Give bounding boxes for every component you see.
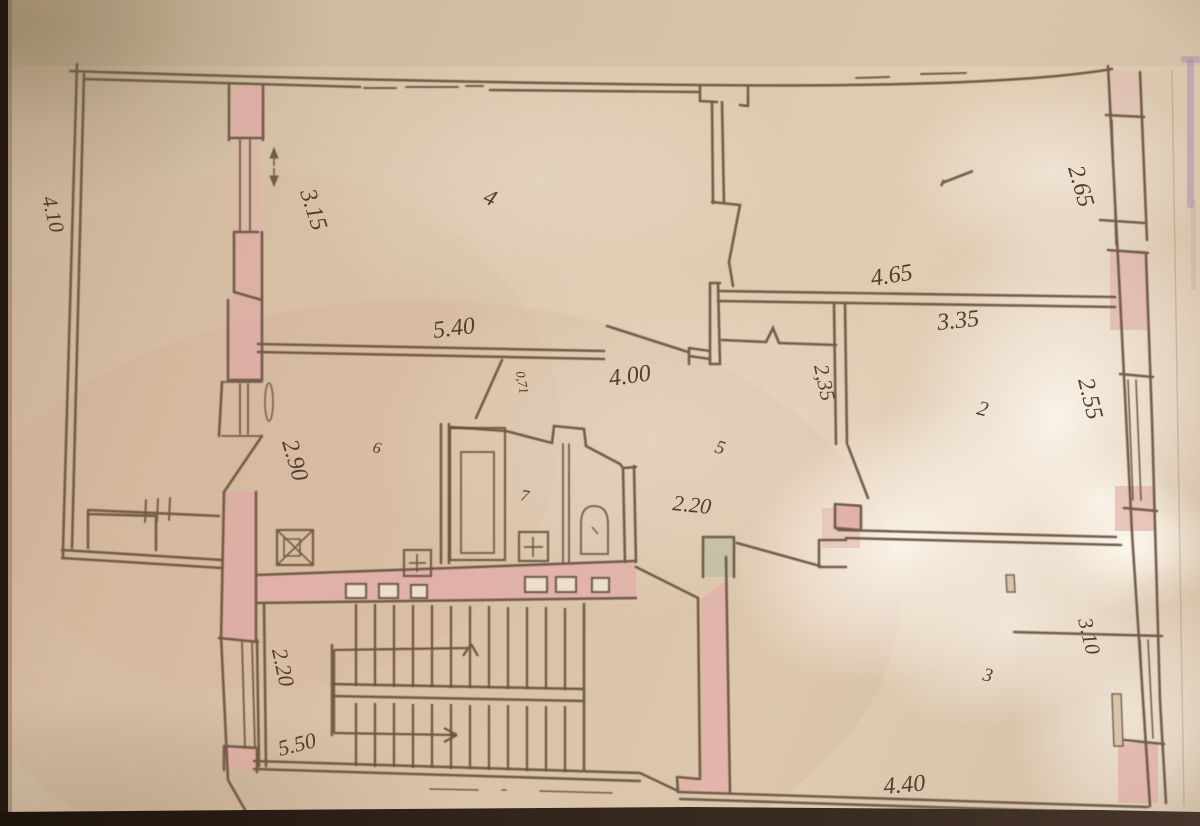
svg-text:2.20: 2.20 [671, 490, 712, 519]
svg-text:5.40: 5.40 [432, 313, 477, 344]
svg-text:3.35: 3.35 [935, 306, 980, 336]
svg-text:4.40: 4.40 [882, 770, 926, 800]
